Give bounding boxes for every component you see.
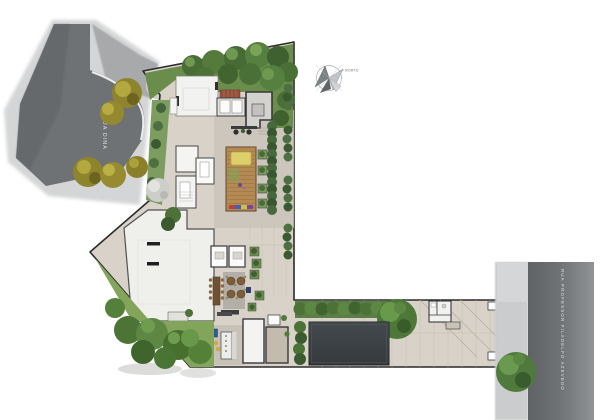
tree-icon <box>126 156 148 178</box>
tree-icon <box>73 157 103 187</box>
street-label-professor: RUA PROFESSOR FILADELFO AZEVEDO <box>560 269 565 391</box>
tree-icon <box>100 101 124 125</box>
sidewalk-right-upper <box>497 262 528 302</box>
compass-label: NORTE <box>345 69 359 73</box>
tree-icon <box>496 352 536 392</box>
site-parcel <box>90 42 497 378</box>
street-professor-filadelfo-azevedo: RUA PROFESSOR FILADELFO AZEVEDO <box>495 262 594 420</box>
kitchen-island <box>221 332 237 359</box>
compass-rose: NORTE <box>315 65 359 93</box>
site-plan-svg: RUA DINA <box>0 0 605 420</box>
social-rooms <box>209 246 251 315</box>
silver-tree-icon <box>146 178 170 202</box>
site-plan-canvas: RUA DINA <box>0 0 605 420</box>
tree-icon <box>100 162 126 188</box>
entrance-canopy <box>220 90 240 98</box>
kids-deck <box>226 147 256 211</box>
hedge-column <box>267 121 277 215</box>
swimming-pool <box>309 322 389 365</box>
roof-upper-block <box>170 76 218 116</box>
toy-strip <box>229 205 253 209</box>
service-block <box>217 98 245 116</box>
